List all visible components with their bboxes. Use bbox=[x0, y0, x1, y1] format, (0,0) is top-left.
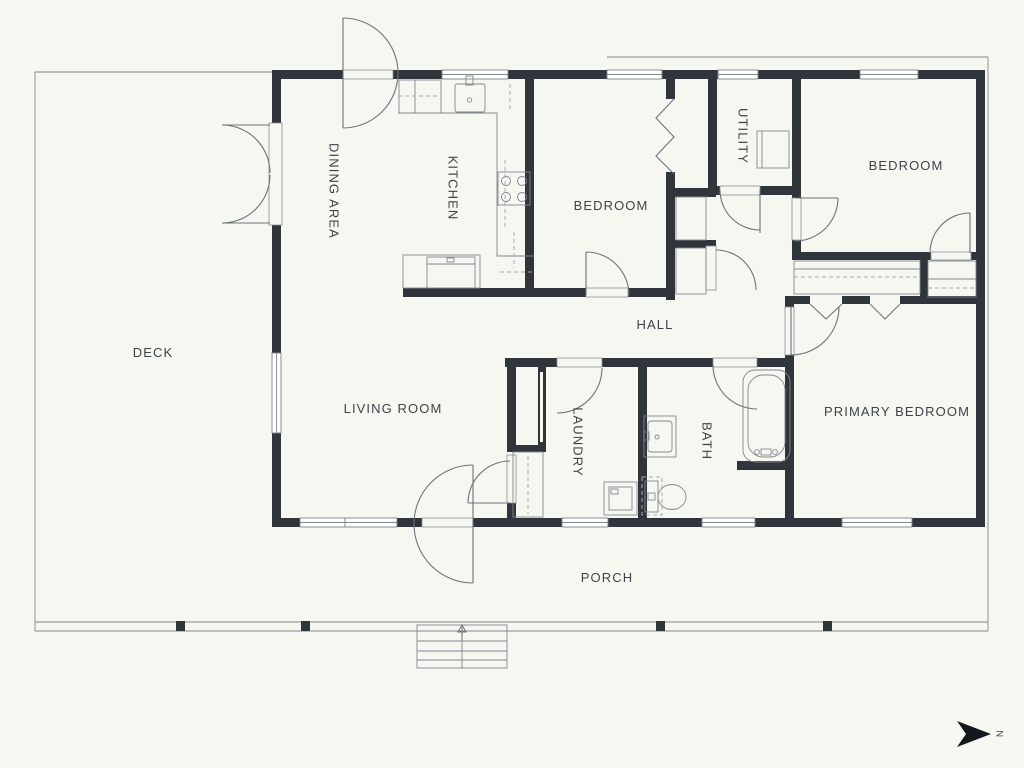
bathtub bbox=[743, 370, 790, 462]
room-label-dining-area: DINING AREA bbox=[327, 143, 342, 239]
wall-segment bbox=[666, 172, 675, 190]
room-label-bath: BATH bbox=[700, 422, 715, 460]
window bbox=[842, 518, 912, 527]
wall-segment bbox=[708, 186, 720, 195]
wall-segment bbox=[508, 70, 607, 79]
bath-door-swing bbox=[713, 365, 757, 409]
wall-segment bbox=[912, 518, 985, 527]
porch-post bbox=[301, 621, 310, 631]
wall-segment bbox=[708, 79, 717, 189]
hall-closet-door-leaf bbox=[706, 246, 716, 290]
wall-segment bbox=[792, 252, 931, 260]
wall-segment bbox=[525, 79, 534, 297]
wall-segment bbox=[647, 358, 713, 367]
wall-segment bbox=[608, 518, 702, 527]
wall-segment bbox=[272, 70, 281, 125]
french-door-top-leaf bbox=[222, 125, 270, 173]
window bbox=[607, 70, 662, 79]
kitchen-sink bbox=[455, 76, 485, 112]
wall-segment bbox=[393, 70, 442, 79]
window bbox=[702, 518, 755, 527]
closet-box bbox=[676, 248, 706, 294]
floor-plan: N DECK DINING AREA KITCHEN BEDROOM UTILI… bbox=[0, 0, 1024, 768]
wall-segment bbox=[272, 223, 281, 353]
window bbox=[272, 353, 281, 433]
vanity-sink bbox=[644, 416, 676, 457]
window bbox=[562, 518, 608, 527]
north-arrow: N bbox=[957, 721, 1005, 747]
wall-segment bbox=[920, 260, 928, 298]
wall-segment bbox=[507, 358, 516, 448]
floor-plan-page: N DECK DINING AREA KITCHEN BEDROOM UTILI… bbox=[0, 0, 1024, 768]
wall-segment bbox=[758, 70, 860, 79]
wall-segment bbox=[403, 288, 534, 297]
kitchen-fixtures bbox=[398, 76, 534, 288]
room-label-kitchen: KITCHEN bbox=[446, 156, 461, 221]
wall-segment bbox=[473, 518, 562, 527]
wall-segment bbox=[507, 503, 516, 518]
room-label-primary-bedroom: PRIMARY BEDROOM bbox=[824, 404, 970, 419]
wall-segment bbox=[757, 358, 794, 367]
wall-segment bbox=[666, 79, 675, 99]
north-label: N bbox=[995, 731, 1005, 738]
closet-box bbox=[676, 197, 706, 240]
bedroom-right-door-swing bbox=[795, 198, 838, 241]
room-label-bedroom-right: BEDROOM bbox=[869, 158, 944, 173]
wall-segment bbox=[792, 79, 801, 198]
windows bbox=[272, 70, 918, 527]
window bbox=[300, 518, 345, 527]
window bbox=[718, 70, 758, 79]
closet-opening-chevron bbox=[810, 304, 842, 319]
wall-segment bbox=[971, 252, 985, 260]
room-label-bedroom-middle: BEDROOM bbox=[574, 198, 649, 213]
wall-segment bbox=[785, 296, 794, 307]
toilet bbox=[642, 477, 686, 515]
kitchen-island-dishwasher bbox=[403, 255, 480, 288]
north-arrow-icon bbox=[957, 721, 991, 747]
deck-porch-outline bbox=[35, 57, 988, 631]
hall-closet-door-swing bbox=[716, 250, 756, 290]
room-label-porch: PORCH bbox=[581, 570, 633, 585]
wardrobe-zigzag bbox=[656, 99, 674, 174]
bathroom-fixtures bbox=[642, 370, 790, 515]
french-door-bottom-leaf bbox=[222, 175, 270, 223]
porch-post bbox=[823, 621, 832, 631]
wall-segment bbox=[272, 518, 300, 527]
wall-segment bbox=[272, 433, 281, 527]
room-label-utility: UTILITY bbox=[736, 108, 751, 164]
wall-segment bbox=[666, 190, 675, 300]
utility-washer bbox=[757, 131, 789, 168]
room-label-laundry: LAUNDRY bbox=[571, 407, 586, 477]
exterior-walls bbox=[272, 70, 985, 527]
utility-door-swing bbox=[720, 190, 760, 233]
wall-segment bbox=[272, 70, 343, 79]
wall-segment bbox=[534, 288, 586, 297]
window bbox=[345, 518, 397, 527]
wall-segment bbox=[755, 518, 842, 527]
bedroom-right-closet-door-swing bbox=[930, 213, 970, 253]
room-label-living-room: LIVING ROOM bbox=[344, 401, 443, 416]
porch-post bbox=[656, 621, 665, 631]
wall-segment bbox=[507, 445, 546, 452]
room-label-deck: DECK bbox=[133, 345, 174, 360]
room-labels: DECK DINING AREA KITCHEN BEDROOM UTILITY… bbox=[133, 108, 970, 585]
wall-segment bbox=[918, 70, 985, 79]
wall-segment bbox=[842, 296, 870, 304]
wall-segment bbox=[397, 518, 422, 527]
laundry-washer bbox=[604, 482, 637, 515]
closet-opening-chevron bbox=[870, 304, 900, 319]
window bbox=[860, 70, 918, 79]
window bbox=[442, 70, 508, 79]
room-label-hall: HALL bbox=[637, 317, 674, 332]
living-closet-door-swing bbox=[468, 461, 510, 503]
wall-segment bbox=[662, 70, 718, 79]
interior-walls bbox=[403, 79, 985, 518]
wall-segment bbox=[792, 296, 810, 304]
wall-segment bbox=[792, 240, 801, 254]
porch-post bbox=[176, 621, 185, 631]
